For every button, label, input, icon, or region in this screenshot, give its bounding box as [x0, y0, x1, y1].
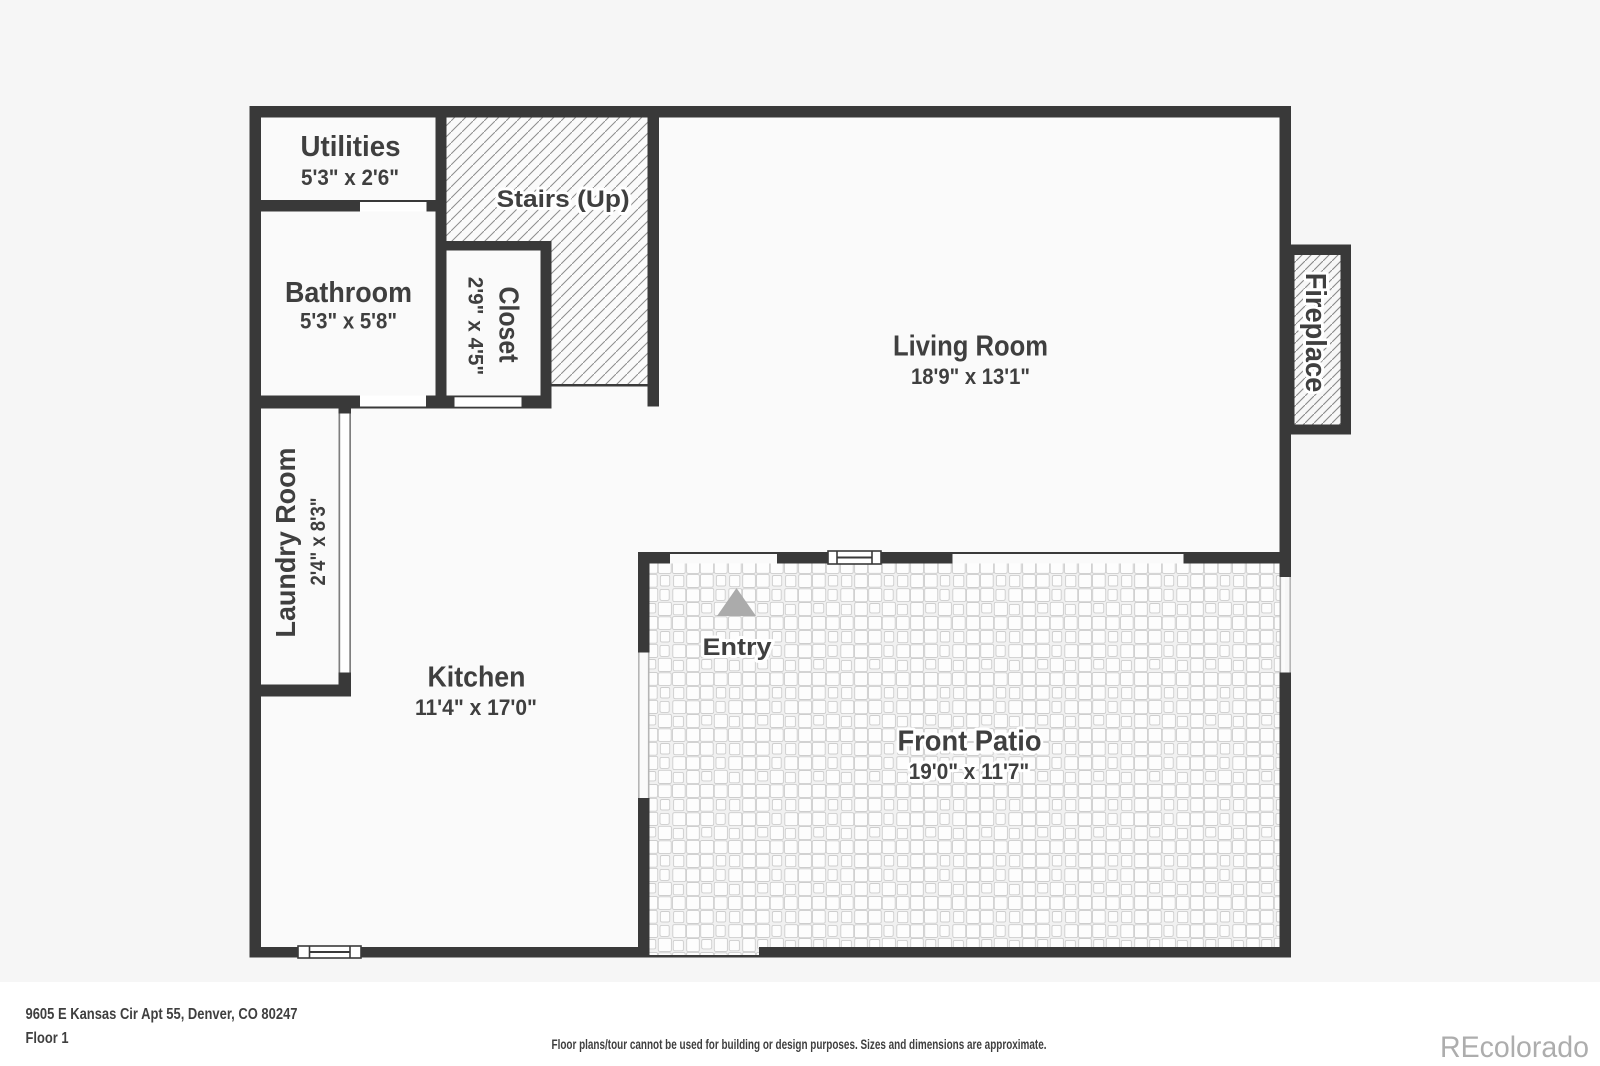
svg-text:Utilities: Utilities	[301, 131, 401, 163]
svg-text:Laundry Room: Laundry Room	[270, 448, 301, 638]
svg-text:Closet: Closet	[493, 287, 524, 363]
svg-text:18'9" x 13'1": 18'9" x 13'1"	[911, 364, 1030, 389]
svg-text:Stairs (Up): Stairs (Up)	[497, 186, 630, 213]
svg-text:5'3" x 2'6": 5'3" x 2'6"	[301, 165, 399, 190]
svg-text:2'4" x 8'3": 2'4" x 8'3"	[306, 498, 330, 586]
svg-text:Floor 1: Floor 1	[26, 1030, 69, 1047]
svg-text:11'4" x 17'0": 11'4" x 17'0"	[415, 695, 537, 720]
svg-text:Floor plans/tour cannot be use: Floor plans/tour cannot be used for buil…	[552, 1036, 1047, 1052]
svg-text:Front Patio: Front Patio	[898, 726, 1042, 758]
svg-text:Living Room: Living Room	[893, 331, 1048, 363]
svg-text:Bathroom: Bathroom	[285, 277, 412, 309]
svg-text:REcolorado: REcolorado	[1440, 1031, 1589, 1064]
svg-text:Entry: Entry	[703, 634, 773, 661]
svg-text:2'9" x 4'5": 2'9" x 4'5"	[464, 277, 488, 376]
svg-text:Kitchen: Kitchen	[428, 662, 526, 694]
svg-text:9605 E Kansas Cir Apt 55, Denv: 9605 E Kansas Cir Apt 55, Denver, CO 802…	[26, 1006, 298, 1023]
svg-text:Fireplace: Fireplace	[1299, 273, 1331, 393]
svg-text:5'3" x 5'8": 5'3" x 5'8"	[300, 309, 397, 334]
svg-text:19'0" x 11'7": 19'0" x 11'7"	[909, 759, 1030, 784]
